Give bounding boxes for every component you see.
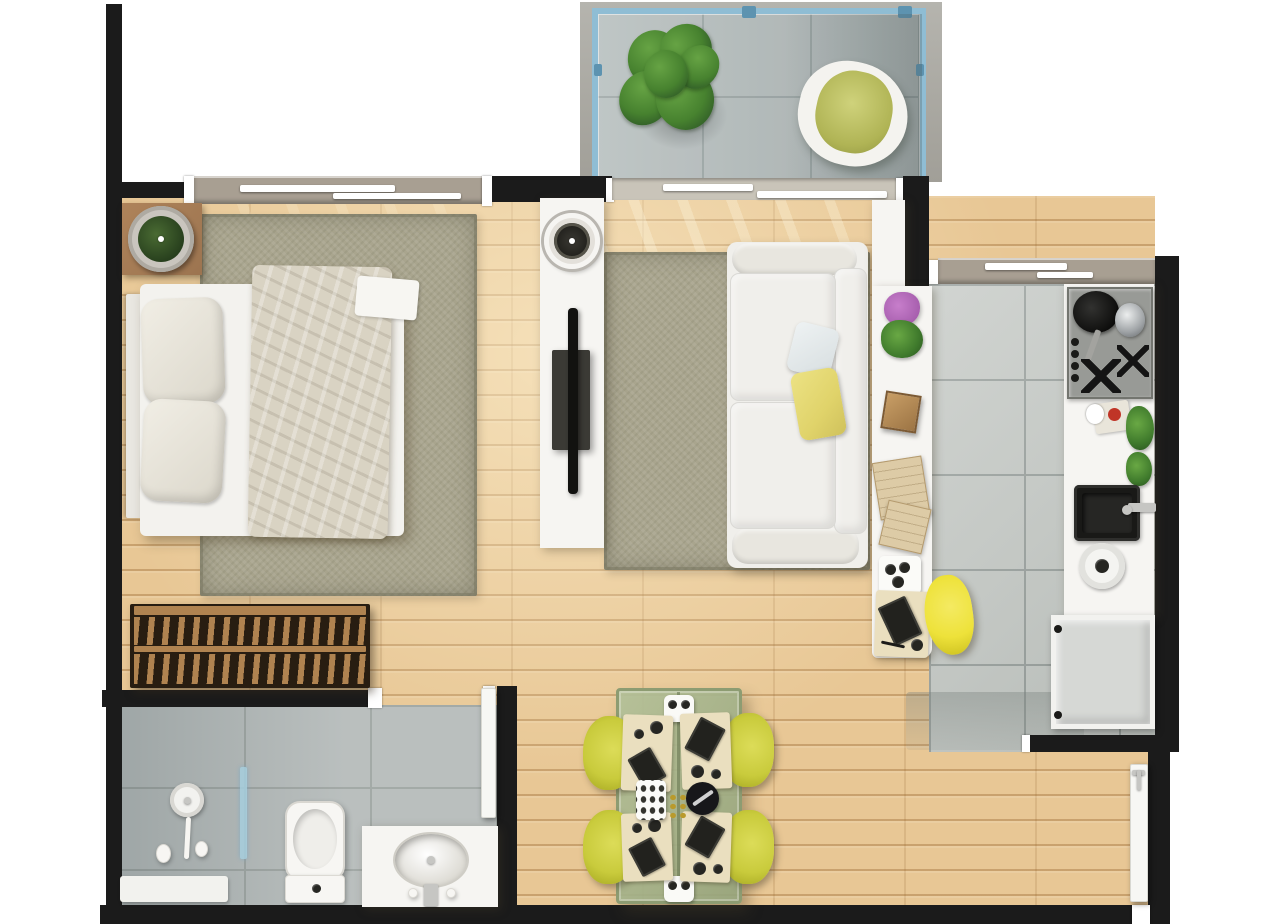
wood-cube-decor [880, 390, 922, 433]
toilet [285, 801, 345, 903]
toiletry-bottle [156, 844, 171, 863]
railing-post [916, 64, 924, 76]
bathroom-right-wall [497, 686, 517, 907]
leaf [644, 50, 688, 98]
place-setting [681, 713, 731, 789]
frying-pan [1073, 291, 1119, 333]
place-setting [681, 812, 731, 882]
cup [899, 562, 910, 573]
decor-dot [668, 700, 677, 709]
bathroom-door [481, 688, 496, 818]
decor-dot [668, 881, 677, 890]
entry-door [1130, 764, 1148, 902]
books-row [134, 654, 366, 684]
counter-placemat [875, 591, 929, 657]
kitchen-sink [1074, 485, 1158, 543]
planter-center [158, 236, 164, 242]
left-exterior-wall [106, 4, 122, 920]
fridge-hinge [1054, 625, 1062, 633]
bedroom-window-sash [333, 193, 461, 199]
plate-small [634, 729, 644, 739]
railing-post [898, 6, 912, 18]
window-jamb [184, 176, 194, 206]
place-setting [622, 813, 672, 881]
burner-grate [1117, 345, 1149, 377]
bathroom-top-wall [102, 690, 368, 707]
sofa [727, 240, 870, 570]
plate-small [632, 823, 642, 833]
kettle [1115, 303, 1145, 337]
balcony-plant [618, 22, 722, 152]
cup [1086, 404, 1104, 424]
folded-sheet [354, 275, 419, 320]
toiletry-bottle [195, 841, 208, 857]
kitchen-window-sash [985, 263, 1067, 270]
faucet-base [1122, 505, 1132, 515]
plate-small [711, 769, 721, 779]
burner-knob [1071, 338, 1079, 346]
shelf-edge [134, 606, 366, 615]
tap-handle [408, 888, 418, 898]
kitchen-right-wall [1155, 256, 1179, 752]
decor-dot [681, 881, 690, 890]
railing-post [594, 64, 602, 76]
bathroom-vanity [362, 826, 498, 907]
door-jamb [1022, 735, 1030, 752]
shower-glass-divider [240, 767, 247, 859]
bottle-tray [636, 780, 666, 820]
cup [885, 564, 896, 575]
cup [892, 576, 904, 588]
tray [636, 780, 666, 820]
flower-garnish [668, 793, 690, 819]
shower-set [168, 781, 208, 871]
kitchen-window-wall [938, 258, 1156, 284]
toilet-seat [293, 809, 337, 869]
bedroom-window-sash [240, 185, 395, 192]
door-handle-stem [1137, 770, 1141, 790]
entry-threshold [1132, 905, 1150, 924]
clock-center [569, 238, 575, 244]
window-jamb [482, 176, 492, 206]
fridge-hinge [1054, 711, 1062, 719]
decor-clock [544, 213, 600, 269]
shower-arm [184, 817, 191, 859]
railing-post [742, 6, 756, 18]
flush-button [312, 884, 321, 893]
pillow [140, 297, 226, 406]
flat-tv [568, 308, 578, 494]
shower-center [184, 797, 191, 804]
gas-cooktop [1067, 287, 1153, 399]
breakfast-counter-top [872, 200, 905, 288]
cup-tray [879, 556, 921, 594]
corner-wall-living-kitchen [903, 176, 929, 288]
plate-small [693, 862, 706, 875]
plate-small [648, 819, 661, 832]
pillow [139, 398, 226, 504]
kitchen-window-sash [1037, 272, 1093, 278]
tray [879, 556, 921, 594]
tap-handle [446, 888, 456, 898]
herb-plants [1126, 406, 1154, 450]
plate-small [691, 765, 704, 778]
drain [427, 856, 435, 864]
food [1095, 559, 1109, 573]
bedroom-left-stub-wall [122, 182, 186, 198]
faucet [1128, 503, 1156, 512]
bottom-exterior-wall [100, 905, 1132, 924]
burner-knob [1071, 362, 1079, 370]
bath-mat [120, 876, 228, 902]
apartment-floor-plan [0, 0, 1280, 924]
decor-dot [681, 700, 690, 709]
plate-small [650, 721, 663, 734]
bowl [911, 639, 923, 651]
burner-knob [1071, 374, 1079, 382]
burner-grate [1081, 359, 1121, 393]
bookshelf [130, 604, 370, 688]
dish-plate [1079, 543, 1125, 589]
sliding-door-panel [757, 191, 887, 198]
herb-plants [1126, 452, 1152, 486]
entry-right-wall [1148, 752, 1170, 924]
refrigerator [1051, 615, 1155, 729]
double-bed [126, 264, 418, 540]
center-bowl [686, 782, 719, 815]
faucet [424, 884, 438, 906]
tomato [1108, 408, 1121, 421]
vase-green-plant [881, 320, 923, 358]
burner-knob [1071, 350, 1079, 358]
kitchen-bottom-wall [1030, 735, 1156, 752]
door-jamb [368, 688, 382, 708]
sliding-door-panel [663, 184, 753, 191]
books-row [134, 617, 366, 645]
fridge-body [1051, 615, 1155, 729]
shelf-divider [134, 646, 366, 652]
plate-small [713, 864, 723, 874]
balcony-lounge-chair [796, 60, 912, 170]
